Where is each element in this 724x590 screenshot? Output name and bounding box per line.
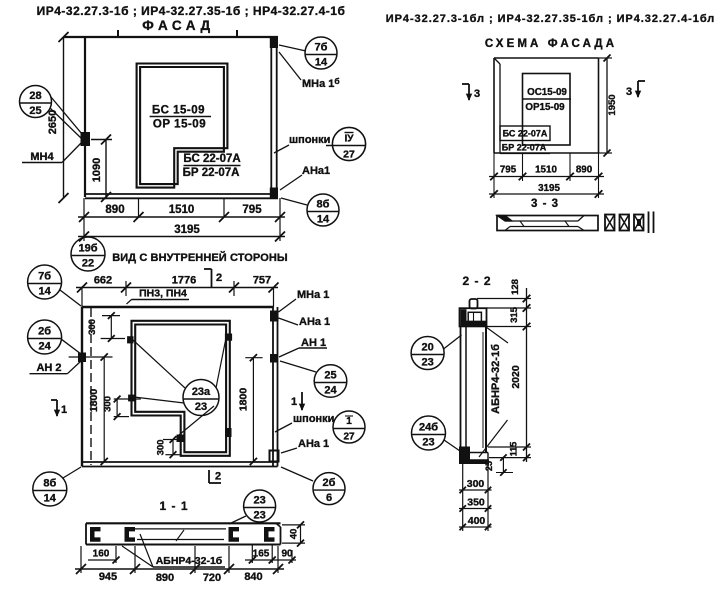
svg-text:1510: 1510 — [169, 204, 195, 216]
svg-text:АН 1: АН 1 — [301, 337, 326, 349]
svg-text:23: 23 — [195, 401, 207, 413]
svg-text:1 - 1: 1 - 1 — [159, 499, 188, 513]
svg-text:шпонки: шпонки — [289, 134, 330, 146]
svg-text:1: 1 — [346, 416, 352, 427]
svg-text:24: 24 — [324, 385, 337, 397]
svg-text:1: 1 — [291, 396, 297, 408]
svg-text:7б: 7б — [38, 271, 51, 283]
svg-text:2б: 2б — [323, 477, 336, 489]
svg-text:3 - 3: 3 - 3 — [531, 198, 559, 210]
svg-text:АБНР4-32-1б: АБНР4-32-1б — [490, 344, 502, 414]
svg-text:25: 25 — [324, 370, 336, 382]
svg-text:20: 20 — [421, 342, 433, 354]
svg-text:1510: 1510 — [535, 165, 557, 176]
svg-text:24: 24 — [38, 341, 51, 353]
svg-text:300: 300 — [156, 440, 167, 456]
svg-text:128: 128 — [510, 279, 521, 295]
svg-text:1800: 1800 — [88, 389, 100, 413]
svg-text:23: 23 — [253, 495, 265, 507]
svg-text:795: 795 — [500, 165, 517, 176]
svg-text:19б: 19б — [78, 243, 97, 255]
svg-text:23: 23 — [253, 510, 265, 522]
svg-text:МНа 1: МНа 1 — [297, 289, 329, 301]
svg-text:6: 6 — [326, 492, 332, 504]
svg-text:3195: 3195 — [538, 183, 560, 194]
svg-text:2: 2 — [216, 272, 222, 284]
svg-text:2б: 2б — [38, 326, 51, 338]
svg-text:АНа 1: АНа 1 — [299, 316, 330, 328]
svg-text:28: 28 — [29, 90, 41, 102]
svg-text:350: 350 — [467, 497, 485, 509]
svg-text:890: 890 — [105, 204, 124, 216]
svg-text:25: 25 — [484, 461, 494, 471]
svg-text:БС 15-09: БС 15-09 — [152, 105, 205, 117]
svg-text:300: 300 — [87, 319, 98, 335]
svg-text:ОР 15-09: ОР 15-09 — [153, 119, 206, 131]
svg-text:АН 2: АН 2 — [36, 362, 61, 374]
svg-text:40: 40 — [289, 529, 300, 540]
svg-text:23: 23 — [421, 357, 433, 369]
svg-text:ІУ: ІУ — [345, 134, 355, 145]
svg-text:14: 14 — [38, 286, 51, 298]
svg-text:ИР4-32.27.3-1б ; ИР4-32.27.35: ИР4-32.27.3-1б ; ИР4-32.27.35-1б ; НР4-3… — [37, 4, 346, 18]
svg-text:22: 22 — [82, 258, 94, 270]
svg-text:АБНР4-32-1б: АБНР4-32-1б — [156, 555, 223, 567]
svg-text:14: 14 — [315, 57, 328, 69]
svg-text:1950: 1950 — [607, 94, 618, 115]
svg-text:27: 27 — [343, 432, 355, 443]
svg-text:315: 315 — [509, 306, 520, 323]
svg-text:1090: 1090 — [91, 158, 103, 182]
svg-text:МНа 1б: МНа 1б — [302, 76, 340, 90]
svg-text:400: 400 — [468, 515, 486, 527]
svg-text:ПН3, ПН4: ПН3, ПН4 — [139, 288, 187, 300]
svg-text:14: 14 — [317, 214, 330, 226]
svg-text:115: 115 — [509, 442, 519, 457]
svg-text:АНа1: АНа1 — [302, 165, 330, 177]
svg-text:24б: 24б — [419, 422, 438, 434]
svg-text:3195: 3195 — [174, 224, 200, 236]
svg-text:160: 160 — [93, 549, 110, 560]
svg-text:7б: 7б — [315, 42, 328, 54]
svg-text:890: 890 — [156, 572, 174, 584]
svg-text:25: 25 — [29, 105, 41, 117]
svg-text:ИР4-32.27.3-1бл ; ИР4-32.27.3: ИР4-32.27.3-1бл ; ИР4-32.27.35-1бл ; ИР4… — [386, 13, 716, 25]
svg-text:БР 22-07А: БР 22-07А — [502, 143, 547, 153]
svg-text:шпонки: шпонки — [293, 413, 334, 425]
svg-text:1800: 1800 — [238, 388, 250, 412]
svg-text:300: 300 — [467, 478, 485, 490]
svg-text:2: 2 — [215, 471, 221, 483]
svg-text:БР 22-07А: БР 22-07А — [183, 167, 240, 179]
svg-text:1776: 1776 — [172, 275, 196, 287]
svg-text:МН4: МН4 — [30, 151, 54, 163]
svg-text:БС 22-07А: БС 22-07А — [503, 129, 548, 139]
svg-text:23а: 23а — [192, 386, 211, 398]
svg-text:2 - 2: 2 - 2 — [462, 274, 491, 288]
svg-text:АНа 1: АНа 1 — [298, 438, 329, 450]
svg-text:8б: 8б — [317, 199, 330, 211]
svg-text:14: 14 — [44, 493, 57, 505]
svg-text:ОС15-09: ОС15-09 — [527, 87, 567, 98]
svg-text:8б: 8б — [43, 478, 56, 490]
svg-text:ОР15-09: ОР15-09 — [525, 102, 565, 113]
svg-text:795: 795 — [242, 204, 262, 216]
svg-text:890: 890 — [576, 165, 593, 176]
svg-text:3: 3 — [474, 88, 480, 100]
svg-text:27: 27 — [343, 149, 355, 161]
svg-text:90: 90 — [281, 549, 293, 560]
svg-text:2020: 2020 — [510, 365, 522, 389]
svg-text:662: 662 — [94, 275, 112, 287]
svg-text:ВИД С ВНУТРЕННЕЙ СТОРОНЫ: ВИД С ВНУТРЕННЕЙ СТОРОНЫ — [112, 251, 288, 264]
svg-text:3: 3 — [626, 86, 632, 98]
svg-text:ФАСАД: ФАСАД — [142, 18, 214, 33]
svg-text:720: 720 — [203, 572, 221, 584]
svg-text:2650: 2650 — [47, 110, 59, 134]
svg-text:757: 757 — [253, 275, 271, 287]
svg-text:1: 1 — [61, 404, 67, 416]
svg-text:23: 23 — [422, 437, 434, 449]
svg-text:СХЕМА ФАСАДА: СХЕМА ФАСАДА — [485, 38, 617, 50]
svg-text:840: 840 — [244, 571, 262, 583]
svg-text:БС 22-07А: БС 22-07А — [183, 153, 240, 165]
svg-text:945: 945 — [99, 571, 117, 583]
